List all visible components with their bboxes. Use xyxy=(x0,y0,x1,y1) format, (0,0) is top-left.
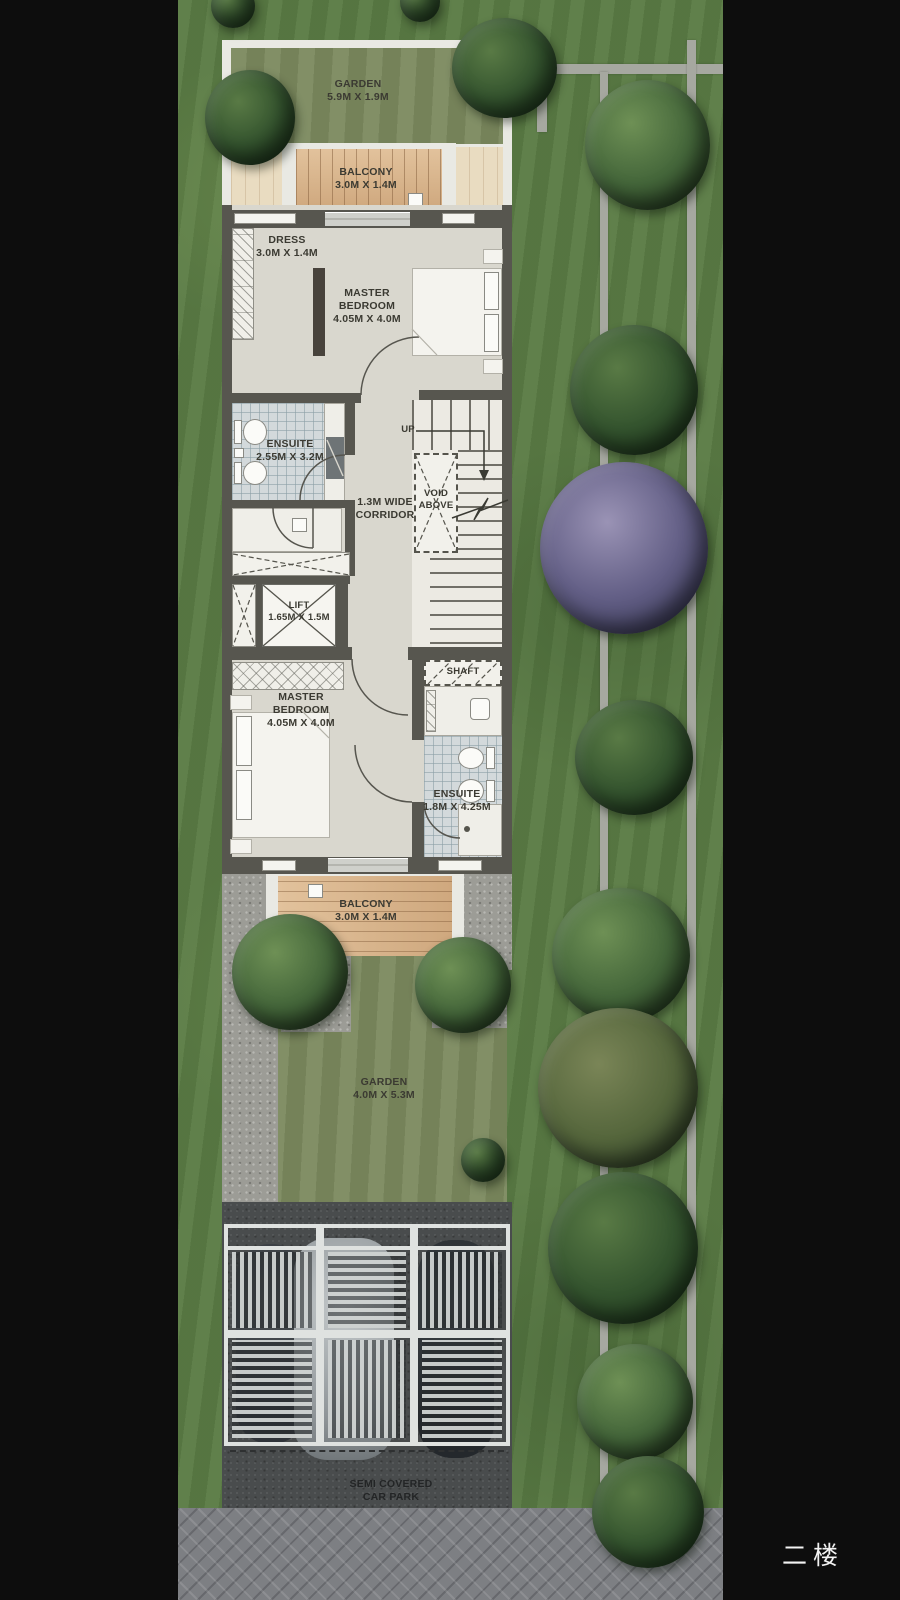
tree xyxy=(552,888,690,1023)
pergola-beam xyxy=(224,1330,510,1338)
linen-closet xyxy=(232,552,350,576)
shrub xyxy=(461,1138,505,1182)
wall-ensuite2-west-a xyxy=(412,660,424,740)
tree xyxy=(585,80,710,210)
pillow xyxy=(484,314,499,352)
void-label: VOIDABOVE xyxy=(419,488,454,512)
wall-lift-north xyxy=(232,576,350,584)
wardrobe-partition xyxy=(313,268,325,356)
balcony-bottom-label: BALCONY3.0M X 1.4M xyxy=(335,898,397,924)
window-bottom-left xyxy=(262,860,296,871)
tree xyxy=(577,1344,693,1460)
bidet-tank xyxy=(234,462,242,484)
right-margin xyxy=(723,0,900,1600)
dress-label: DRESS3.0M X 1.4M xyxy=(256,234,318,260)
corridor-label: 1.3M WIDECORRIDOR xyxy=(356,496,415,522)
wall-bedroom2-north-b xyxy=(408,647,512,660)
tree xyxy=(570,325,698,455)
floor-drain xyxy=(292,518,307,532)
pergola-panel xyxy=(232,1340,312,1438)
pillow xyxy=(236,716,252,766)
tree xyxy=(575,700,693,815)
wall-ensuite1-south xyxy=(232,500,345,508)
garden-top-label: GARDEN5.9M X 1.9M xyxy=(327,78,389,104)
left-margin xyxy=(0,0,178,1600)
lift-label: LIFT1.65M X 1.5M xyxy=(268,600,330,624)
nightstand xyxy=(483,249,503,264)
balcony-door-top xyxy=(325,212,410,226)
tree xyxy=(452,18,557,118)
garden-bottom-label: GARDEN4.0M X 5.3M xyxy=(353,1076,415,1102)
lift-side-shaft xyxy=(232,584,256,647)
car-park-label: SEMI COVEREDCAR PARK xyxy=(350,1478,433,1504)
wardrobe-2 xyxy=(232,662,344,690)
shower-room xyxy=(232,508,342,552)
shower-head xyxy=(464,826,470,832)
stair-flight-lower xyxy=(430,558,502,647)
tree xyxy=(415,937,511,1033)
balcony-top-label: BALCONY3.0M X 1.4M xyxy=(335,166,397,192)
floor-tag: 二楼 xyxy=(782,1536,844,1572)
pergola-panel xyxy=(328,1252,406,1328)
dress-closet xyxy=(232,228,254,340)
tree xyxy=(538,1008,698,1168)
toilet xyxy=(458,747,484,769)
pergola-panel xyxy=(422,1340,502,1438)
nightstand xyxy=(230,839,252,854)
toilet-tank xyxy=(486,747,495,769)
bidet xyxy=(243,461,267,485)
washbasin xyxy=(234,448,244,458)
nightstand xyxy=(483,359,503,374)
pergola-panel xyxy=(232,1252,312,1328)
tree xyxy=(232,914,348,1030)
vanity-shelf xyxy=(426,690,436,732)
up-label: UP xyxy=(401,424,415,436)
stair-flight-upper xyxy=(458,450,502,558)
master-bedroom-1-label: MASTERBEDROOM4.05M X 4.0M xyxy=(333,287,401,326)
window-bottom-right xyxy=(438,860,482,871)
tree xyxy=(592,1456,704,1568)
window-top-right xyxy=(442,213,475,224)
wall-right xyxy=(502,205,512,875)
ensuite-1-label: ENSUITE2.55M X 3.2M xyxy=(256,438,324,464)
tree-purple xyxy=(540,462,708,634)
pillow xyxy=(484,272,499,310)
ensuite-2-label: ENSUITE1.8M X 4.25M xyxy=(423,788,491,814)
shower-tray xyxy=(326,437,344,479)
tree xyxy=(205,70,295,165)
pillow xyxy=(236,770,252,820)
wall-bedroom2-north-a xyxy=(222,647,352,660)
pergola-panel xyxy=(422,1252,502,1328)
wall-corridor-west-a xyxy=(345,403,355,455)
stair-winders xyxy=(412,400,502,450)
toilet-tank xyxy=(234,420,242,444)
boundary-wall-right xyxy=(503,144,512,210)
wall-left xyxy=(222,205,232,875)
balcony-door-bottom xyxy=(328,858,408,872)
sink xyxy=(470,698,490,720)
wall-bedroom1-south xyxy=(222,393,361,403)
nightstand xyxy=(230,695,252,710)
wall-lift-east xyxy=(336,584,348,647)
floor-plan-page: GARDEN5.9M X 1.9M BALCONY3.0M X 1.4M DRE… xyxy=(0,0,900,1600)
master-bedroom-2-label: MASTERBEDROOM4.05M X 4.0M xyxy=(267,691,335,730)
pergola-beam xyxy=(224,1246,510,1250)
shaft-label: SHAFT xyxy=(447,666,480,678)
parking-line xyxy=(230,1450,504,1452)
balcony-drain xyxy=(308,884,323,898)
tree xyxy=(548,1172,698,1324)
window-top-left xyxy=(234,213,296,224)
pergola-panel xyxy=(328,1340,406,1438)
